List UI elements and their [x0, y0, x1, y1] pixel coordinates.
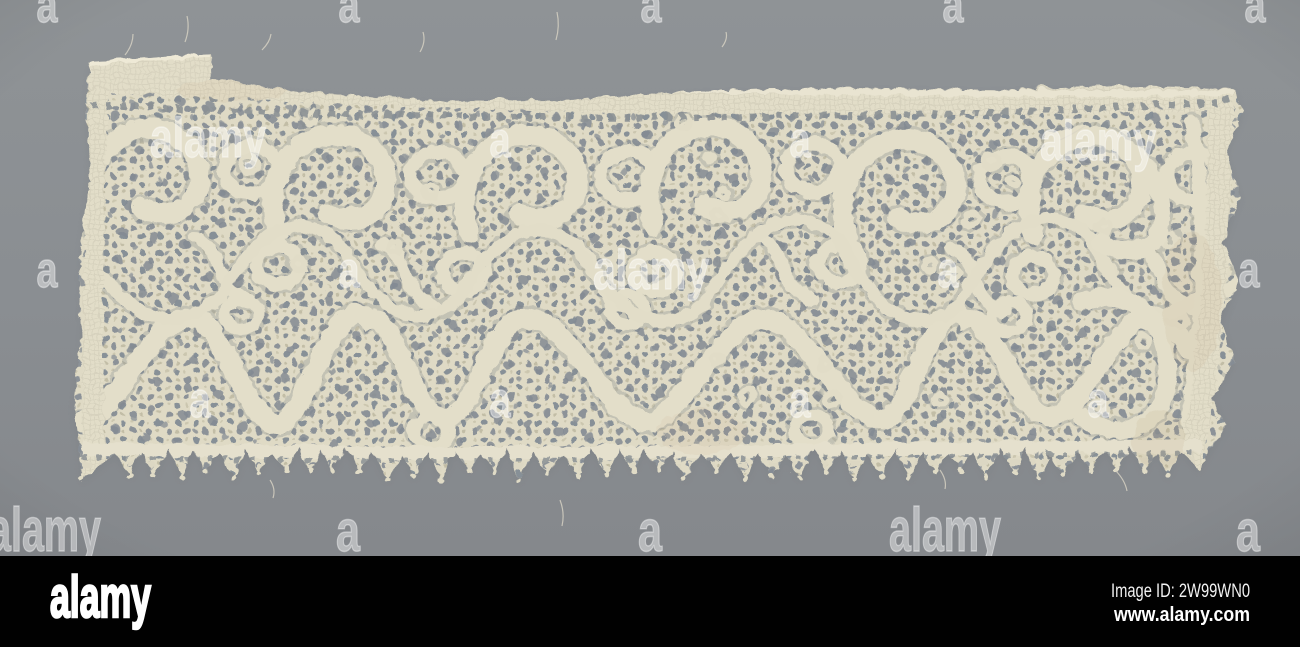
svg-text:alamy: alamy — [1040, 109, 1156, 172]
svg-text:a: a — [490, 372, 512, 428]
svg-text:a: a — [190, 372, 212, 428]
svg-text:www.alamy.com: www.alamy.com — [1113, 604, 1250, 626]
svg-text:a: a — [1245, 0, 1267, 33]
svg-text:alamy: alamy — [50, 565, 151, 630]
svg-text:Image ID: 2W99WN0: Image ID: 2W99WN0 — [1111, 581, 1250, 602]
svg-text:a: a — [1239, 242, 1261, 298]
svg-text:alamy: alamy — [889, 496, 1001, 565]
svg-text:a: a — [336, 499, 361, 564]
svg-text:a: a — [37, 0, 59, 33]
svg-text:a: a — [37, 242, 59, 298]
svg-text:a: a — [790, 372, 812, 428]
svg-text:a: a — [1236, 499, 1261, 564]
svg-text:a: a — [339, 0, 361, 33]
svg-text:a: a — [490, 112, 512, 168]
svg-text:a: a — [1088, 372, 1110, 428]
svg-text:a: a — [339, 242, 361, 298]
svg-text:a: a — [790, 112, 812, 168]
svg-text:alamy: alamy — [150, 106, 266, 169]
svg-text:alamy: alamy — [593, 238, 709, 301]
svg-text:a: a — [943, 0, 965, 33]
svg-text:a: a — [938, 242, 960, 298]
svg-text:a: a — [641, 0, 663, 33]
svg-text:alamy: alamy — [0, 496, 101, 565]
svg-text:a: a — [638, 499, 663, 564]
